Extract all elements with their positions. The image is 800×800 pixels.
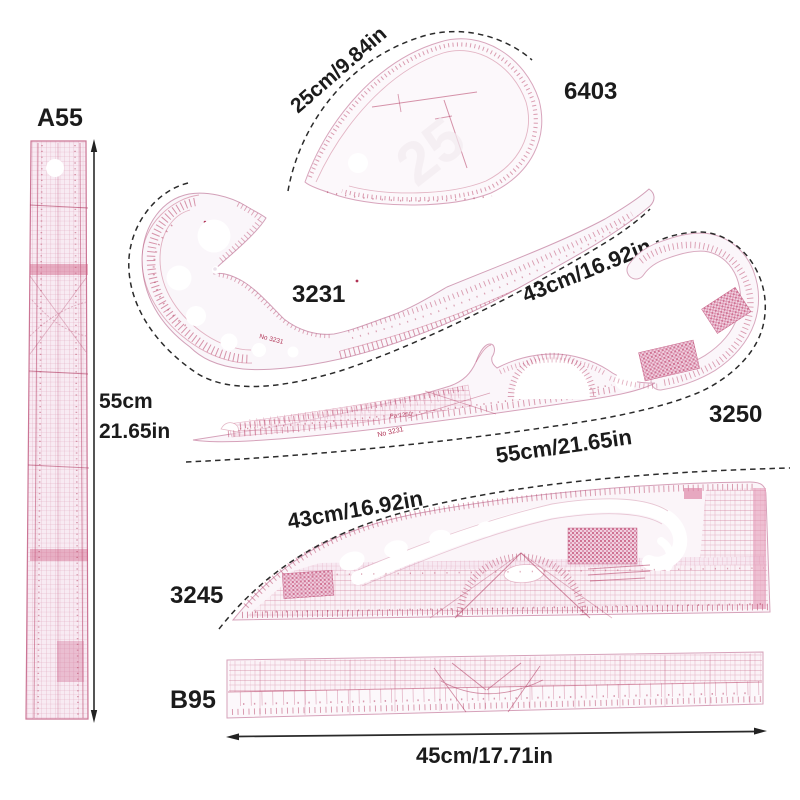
svg-text:21.65in: 21.65in [99,420,170,443]
svg-text:3231: 3231 [292,281,345,308]
svg-text:B95: B95 [170,686,216,714]
svg-text:45cm/17.71in: 45cm/17.71in [416,743,553,768]
svg-text:55cm: 55cm [99,390,153,413]
svg-text:3245: 3245 [170,582,223,609]
svg-text:A55: A55 [37,104,83,132]
svg-text:6403: 6403 [564,78,617,105]
svg-text:3250: 3250 [709,401,762,428]
